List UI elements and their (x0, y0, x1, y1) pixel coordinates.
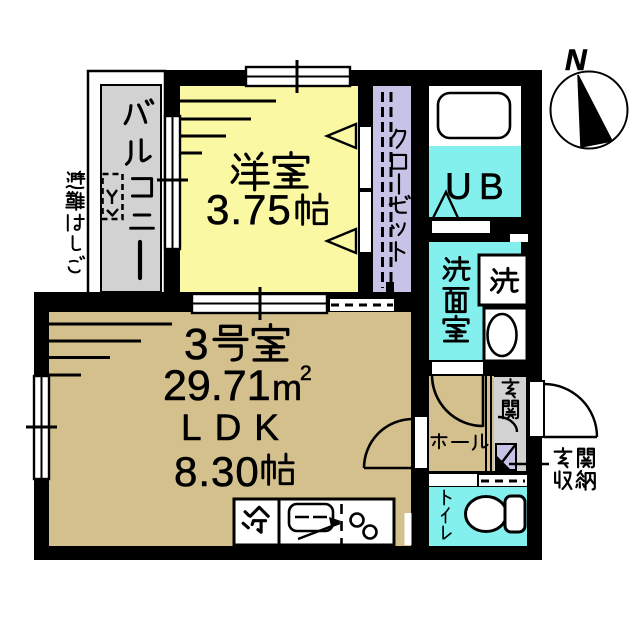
svg-text:B: B (479, 166, 504, 207)
svg-text:LDK: LDK (181, 407, 292, 448)
svg-text:3.75: 3.75 (206, 186, 292, 233)
svg-text:N: N (565, 44, 588, 77)
svg-text:29.71: 29.71 (163, 362, 271, 410)
svg-text:2: 2 (300, 362, 312, 385)
svg-text:m: m (272, 367, 302, 408)
svg-text:U: U (445, 166, 472, 207)
svg-text:8.30: 8.30 (174, 448, 260, 495)
